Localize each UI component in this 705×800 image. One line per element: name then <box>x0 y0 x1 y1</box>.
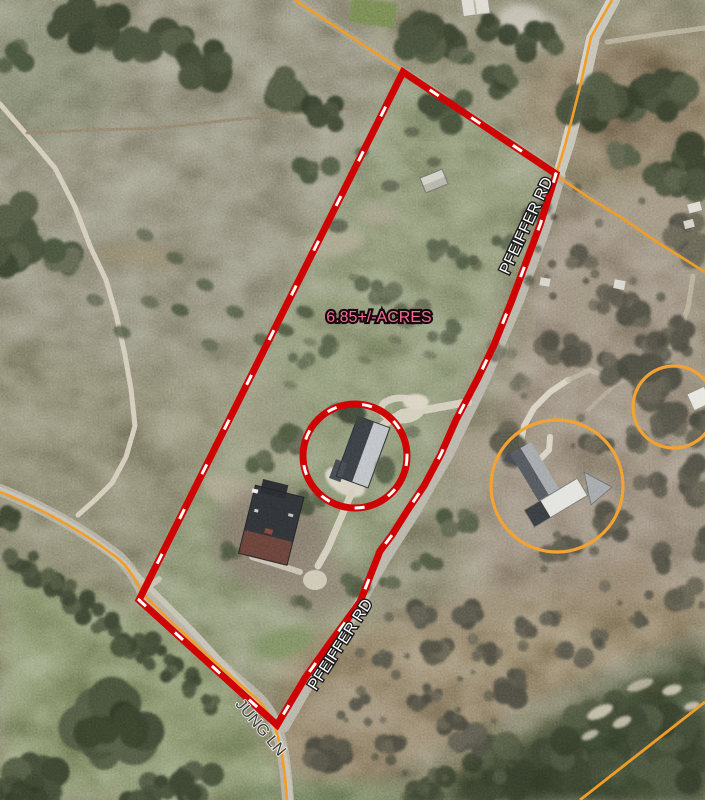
svg-text:6.85+/-ACRES: 6.85+/-ACRES <box>326 309 431 326</box>
